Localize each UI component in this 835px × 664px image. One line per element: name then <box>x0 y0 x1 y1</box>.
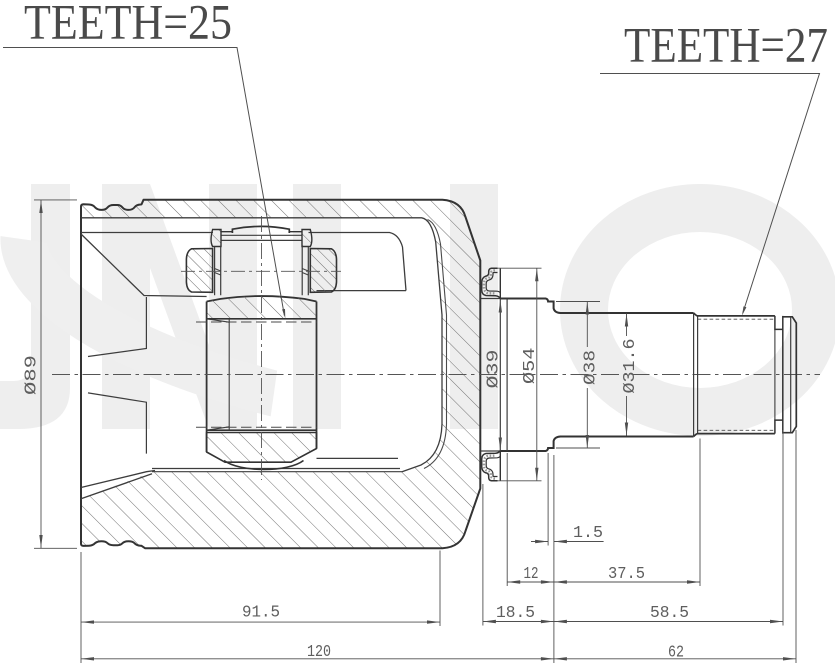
svg-text:91.5: 91.5 <box>242 604 280 623</box>
svg-text:TEETH=25: TEETH=25 <box>24 0 232 50</box>
svg-text:1.5: 1.5 <box>573 524 603 543</box>
svg-text:Ø39: Ø39 <box>485 350 504 389</box>
svg-text:18.5: 18.5 <box>496 604 535 623</box>
svg-text:37.5: 37.5 <box>608 565 645 584</box>
svg-text:Ø38: Ø38 <box>582 350 601 385</box>
svg-text:Ø54: Ø54 <box>521 348 540 385</box>
svg-text:12: 12 <box>524 565 539 584</box>
svg-text:120: 120 <box>307 643 331 662</box>
svg-text:Ø89: Ø89 <box>23 355 42 395</box>
svg-text:58.5: 58.5 <box>650 604 689 623</box>
svg-text:TEETH=27: TEETH=27 <box>624 17 828 73</box>
svg-text:62: 62 <box>668 644 684 663</box>
svg-text:Ø31.6: Ø31.6 <box>621 339 640 394</box>
